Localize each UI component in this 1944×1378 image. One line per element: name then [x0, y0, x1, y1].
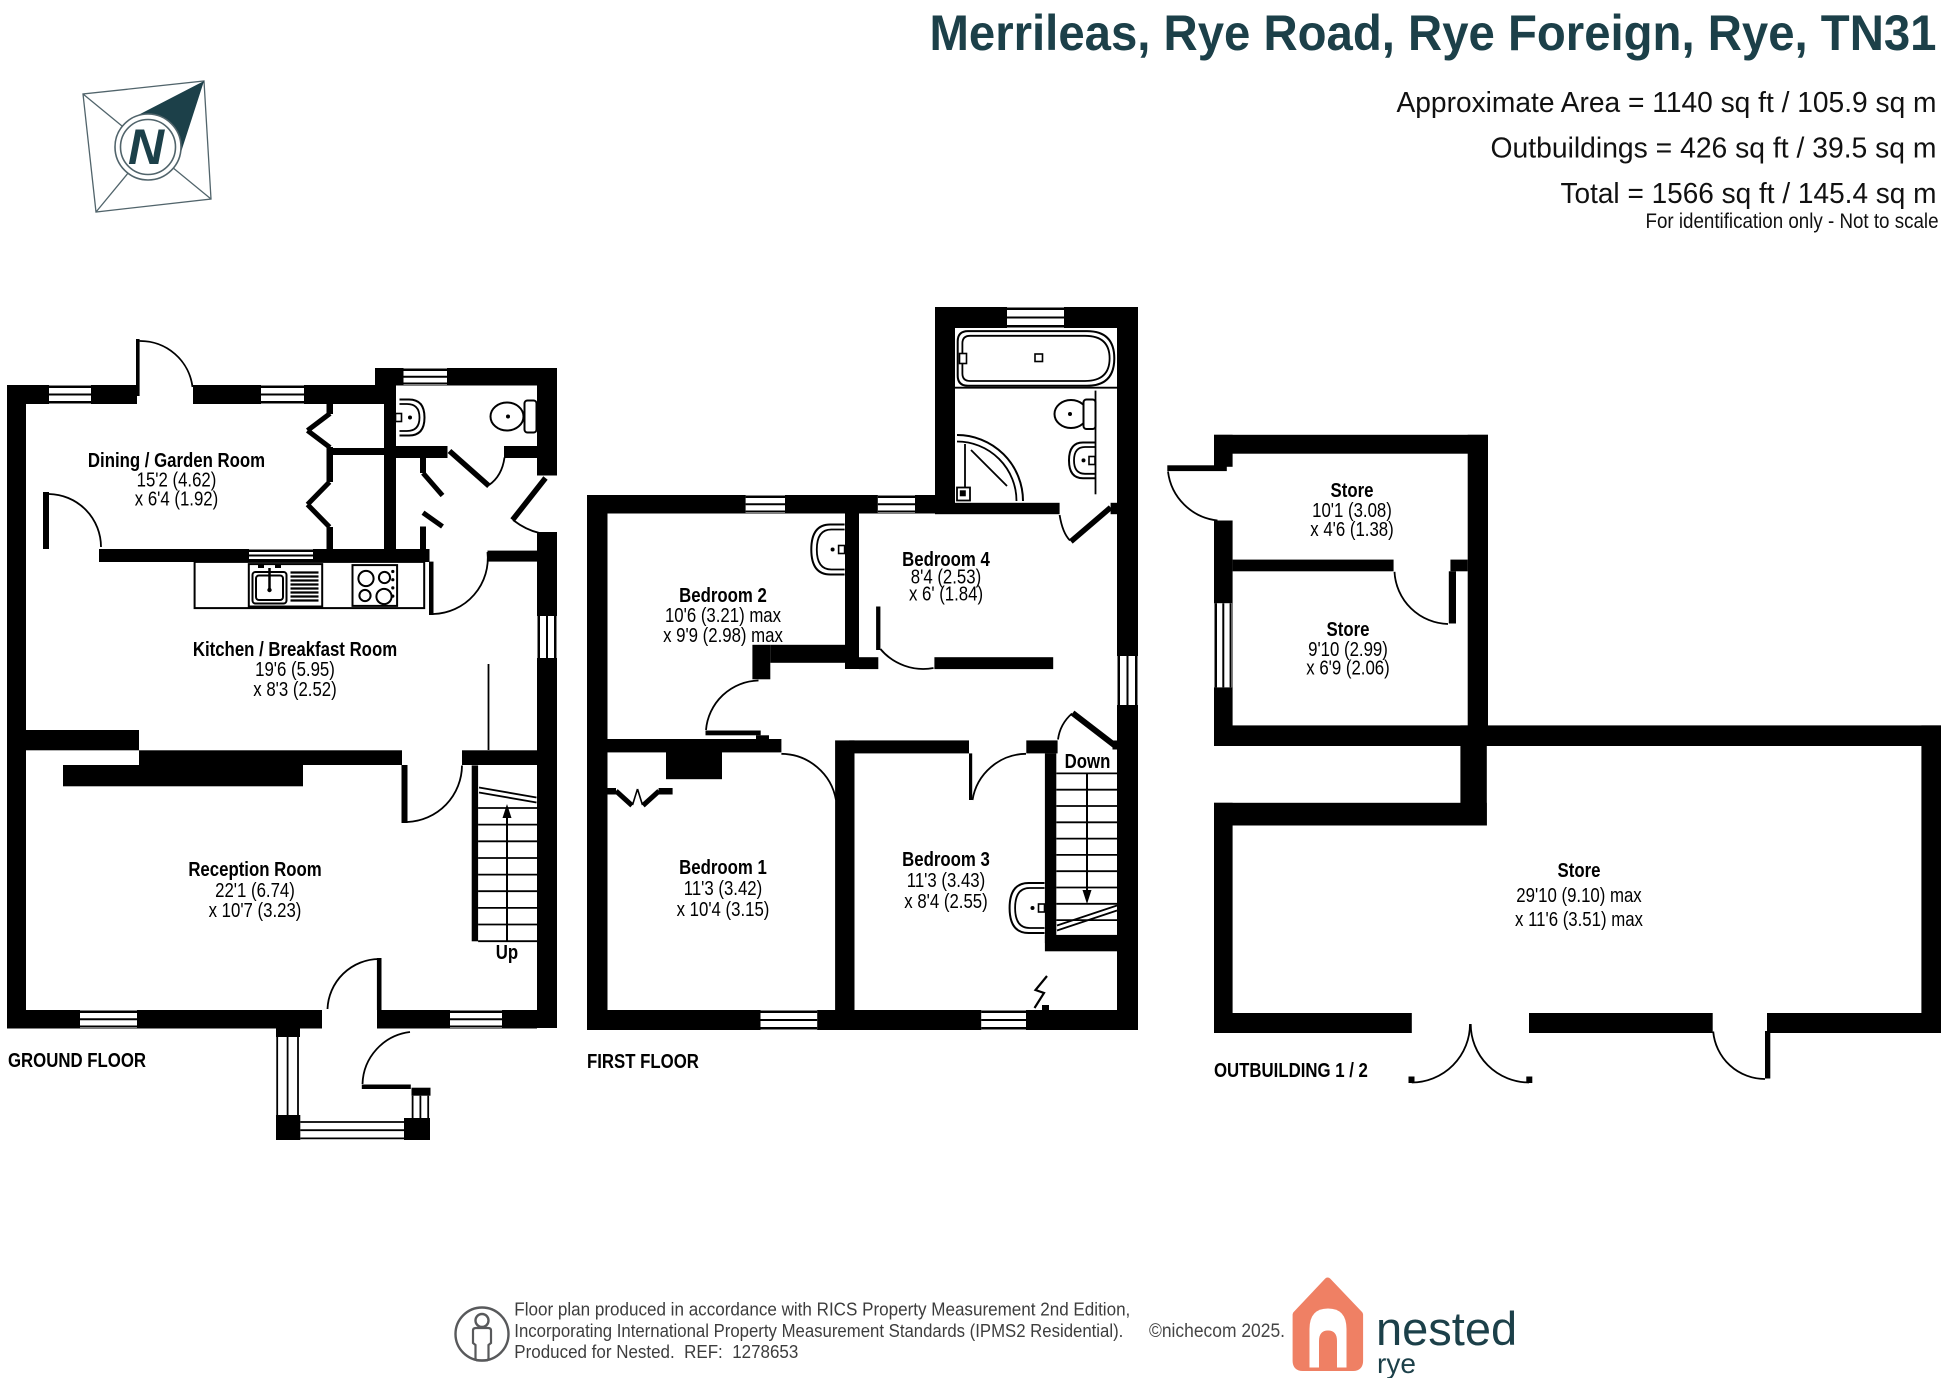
svg-text:For identification only - Not: For identification only - Not to scale	[1646, 210, 1939, 233]
svg-text:Up: Up	[496, 941, 518, 964]
svg-text:x 8'4 (2.55): x 8'4 (2.55)	[904, 890, 987, 913]
svg-text:x 6'4 (1.92): x 6'4 (1.92)	[135, 487, 218, 510]
svg-text:Reception Room: Reception Room	[188, 858, 321, 881]
svg-text:rye: rye	[1377, 1348, 1416, 1378]
svg-text:x 6'9 (2.06): x 6'9 (2.06)	[1306, 656, 1389, 679]
svg-text:x 10'7 (3.23): x 10'7 (3.23)	[209, 899, 302, 922]
svg-text:Floor plan produced in accorda: Floor plan produced in accordance with R…	[514, 1300, 1130, 1320]
svg-text:©nichecom 2025.: ©nichecom 2025.	[1149, 1321, 1285, 1342]
svg-text:11'3 (3.42): 11'3 (3.42)	[684, 877, 762, 900]
svg-text:Bedroom 3: Bedroom 3	[902, 848, 990, 871]
svg-text:29'10 (9.10) max: 29'10 (9.10) max	[1516, 884, 1642, 907]
svg-text:Merrileas, Rye Road, Rye Forei: Merrileas, Rye Road, Rye Foreign, Rye, T…	[930, 5, 1937, 61]
svg-text:Store: Store	[1558, 859, 1601, 882]
svg-text:OUTBUILDING 1 / 2: OUTBUILDING 1 / 2	[1214, 1059, 1368, 1082]
svg-text:Down: Down	[1065, 750, 1111, 773]
svg-text:Incorporating International Pr: Incorporating International Property Mea…	[514, 1321, 1123, 1341]
svg-text:Bedroom 1: Bedroom 1	[679, 856, 767, 879]
svg-text:11'3 (3.43): 11'3 (3.43)	[907, 869, 985, 892]
svg-text:Approximate Area = 1140 sq ft: Approximate Area = 1140 sq ft / 105.9 sq…	[1397, 87, 1937, 119]
svg-text:x 4'6 (1.38): x 4'6 (1.38)	[1310, 518, 1393, 541]
svg-text:Outbuildings = 426 sq ft / 39.: Outbuildings = 426 sq ft / 39.5 sq m	[1491, 133, 1937, 165]
svg-text:x 6' (1.84): x 6' (1.84)	[909, 582, 983, 605]
svg-text:x 11'6 (3.51) max: x 11'6 (3.51) max	[1515, 908, 1644, 931]
svg-text:x 10'4 (3.15): x 10'4 (3.15)	[677, 898, 770, 921]
svg-text:Produced for Nested. REF: 12: Produced for Nested. REF: 1278653	[514, 1342, 798, 1362]
svg-text:FIRST FLOOR: FIRST FLOOR	[587, 1050, 699, 1073]
svg-text:GROUND FLOOR: GROUND FLOOR	[8, 1049, 146, 1072]
svg-text:N: N	[128, 119, 165, 175]
svg-text:x 9'9 (2.98) max: x 9'9 (2.98) max	[663, 624, 784, 647]
svg-text:Total = 1566 sq ft / 145.4 sq: Total = 1566 sq ft / 145.4 sq m	[1561, 178, 1937, 210]
svg-text:x 8'3 (2.52): x 8'3 (2.52)	[253, 678, 336, 701]
